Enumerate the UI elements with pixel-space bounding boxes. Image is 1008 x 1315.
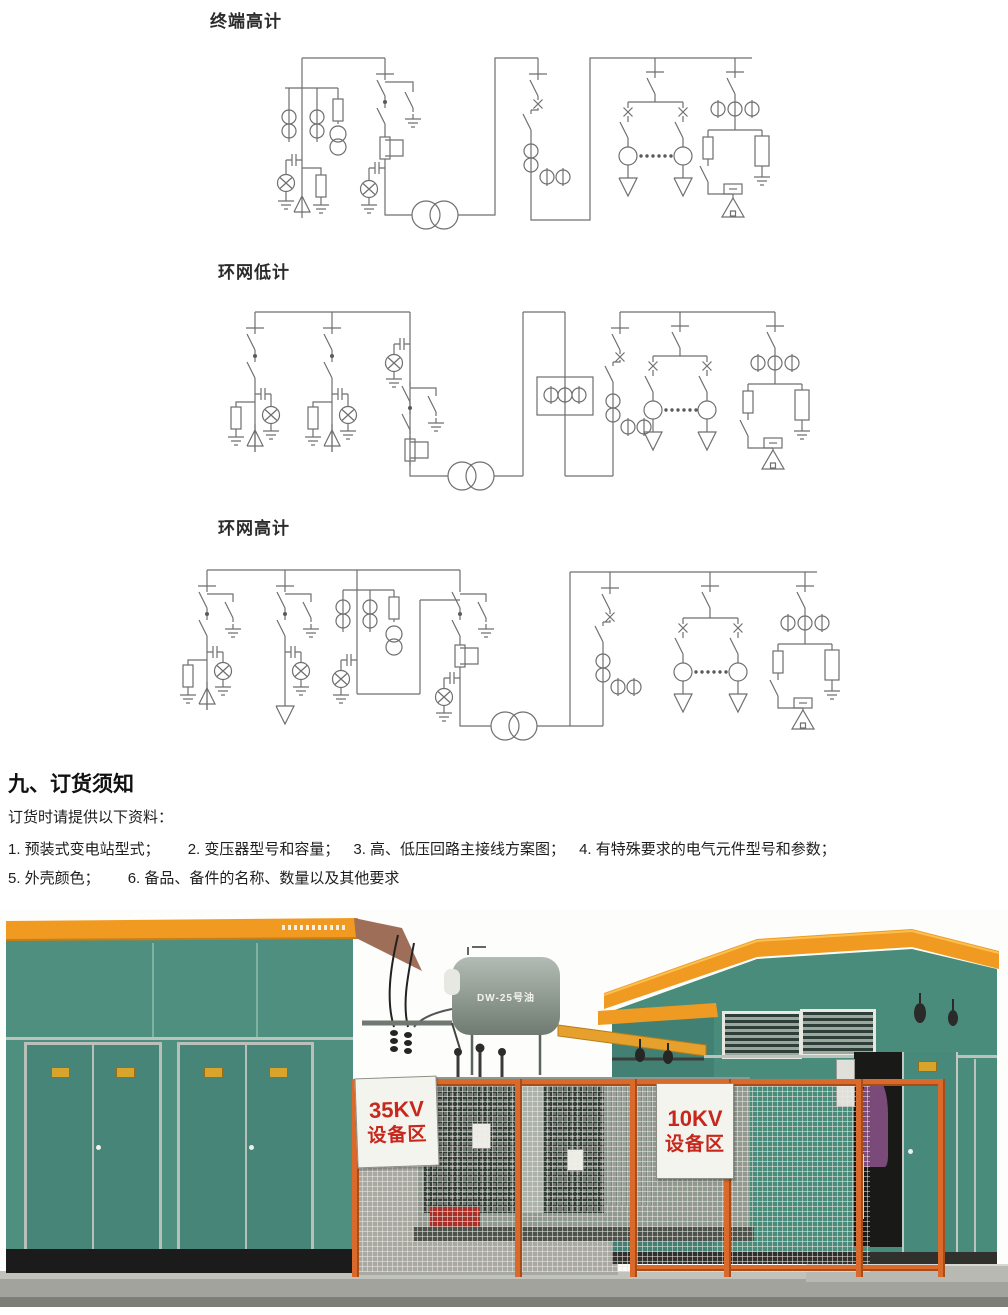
fence-post bbox=[938, 1079, 945, 1277]
wall-seam bbox=[256, 943, 258, 1039]
transformer-conservator-label: DW-25号油 bbox=[477, 989, 535, 1004]
door-leaf bbox=[92, 1045, 159, 1255]
wall-seam bbox=[152, 943, 154, 1039]
door-label-plate bbox=[51, 1067, 70, 1078]
door-label-plate bbox=[116, 1067, 135, 1078]
ordering-line-2: 5. 外壳颜色；6. 备品、备件的名称、数量以及其他要求 bbox=[8, 867, 399, 888]
label-terminal-high-metering: 终端高计 bbox=[210, 7, 282, 32]
substation-photo: DW-25号油 35KV 设备区 10KV 设备区 bbox=[0, 909, 1008, 1307]
ordering-item: 4. 有特殊要求的电气元件型号和参数； bbox=[579, 841, 836, 858]
ordering-line-1: 1. 预装式变电站型式；2. 变压器型号和容量；3. 高、低压回路主接线方案图；… bbox=[8, 838, 836, 859]
door-leaf bbox=[245, 1045, 312, 1255]
sign-35kv-line2: 设备区 bbox=[367, 1123, 428, 1149]
wall-trim bbox=[974, 1059, 976, 1252]
roof-watermark bbox=[282, 925, 346, 930]
diagram-terminal-high-metering bbox=[255, 50, 835, 250]
transformer-conservator: DW-25号油 bbox=[452, 957, 560, 1035]
sign-10kv-area: 10KV 设备区 bbox=[656, 1083, 734, 1179]
door-leaf bbox=[27, 1045, 92, 1255]
ordering-item: 5. 外壳颜色； bbox=[8, 870, 100, 887]
sign-35kv-line1: 35KV bbox=[369, 1095, 425, 1124]
louver-vent bbox=[722, 1011, 802, 1059]
fence-rail-bottom bbox=[630, 1265, 945, 1271]
ordering-item: 2. 变压器型号和容量； bbox=[188, 841, 340, 858]
left-building-doors-1 bbox=[24, 1042, 162, 1258]
ordering-item: 6. 备品、备件的名称、数量以及其他要求 bbox=[128, 870, 400, 887]
conservator-end-cap bbox=[444, 969, 460, 995]
sign-10kv-line2: 设备区 bbox=[665, 1133, 725, 1157]
door-knob bbox=[96, 1145, 101, 1150]
ground bbox=[0, 1297, 1008, 1307]
left-building-doors-2 bbox=[177, 1042, 314, 1258]
ordering-item: 3. 高、低压回路主接线方案图； bbox=[353, 841, 565, 858]
sign-10kv-line1: 10KV bbox=[667, 1105, 722, 1133]
fence-post bbox=[515, 1079, 522, 1277]
louver-vent bbox=[800, 1009, 876, 1057]
door-label-plate bbox=[204, 1067, 223, 1078]
door-label-plate bbox=[918, 1061, 937, 1072]
diagram-ring-high-metering bbox=[150, 552, 940, 772]
label-ring-low-metering: 环网低计 bbox=[218, 258, 290, 283]
diagram-ring-low-metering bbox=[210, 298, 940, 508]
ordering-item: 1. 预装式变电站型式； bbox=[8, 841, 160, 858]
equipment-fence bbox=[352, 1079, 945, 1277]
fence-post bbox=[856, 1079, 863, 1277]
sign-35kv-area: 35KV 设备区 bbox=[354, 1076, 439, 1169]
door-label-plate bbox=[269, 1067, 288, 1078]
ordering-intro: 订货时请提供以下资料： bbox=[8, 806, 173, 827]
door-knob bbox=[249, 1145, 254, 1150]
left-building-plinth bbox=[6, 1249, 353, 1273]
fence-post bbox=[630, 1079, 637, 1277]
door-leaf bbox=[180, 1045, 245, 1255]
label-ring-high-metering: 环网高计 bbox=[218, 514, 290, 539]
wall-trim bbox=[6, 1037, 353, 1040]
ordering-heading: 九、订货须知 bbox=[8, 768, 134, 798]
